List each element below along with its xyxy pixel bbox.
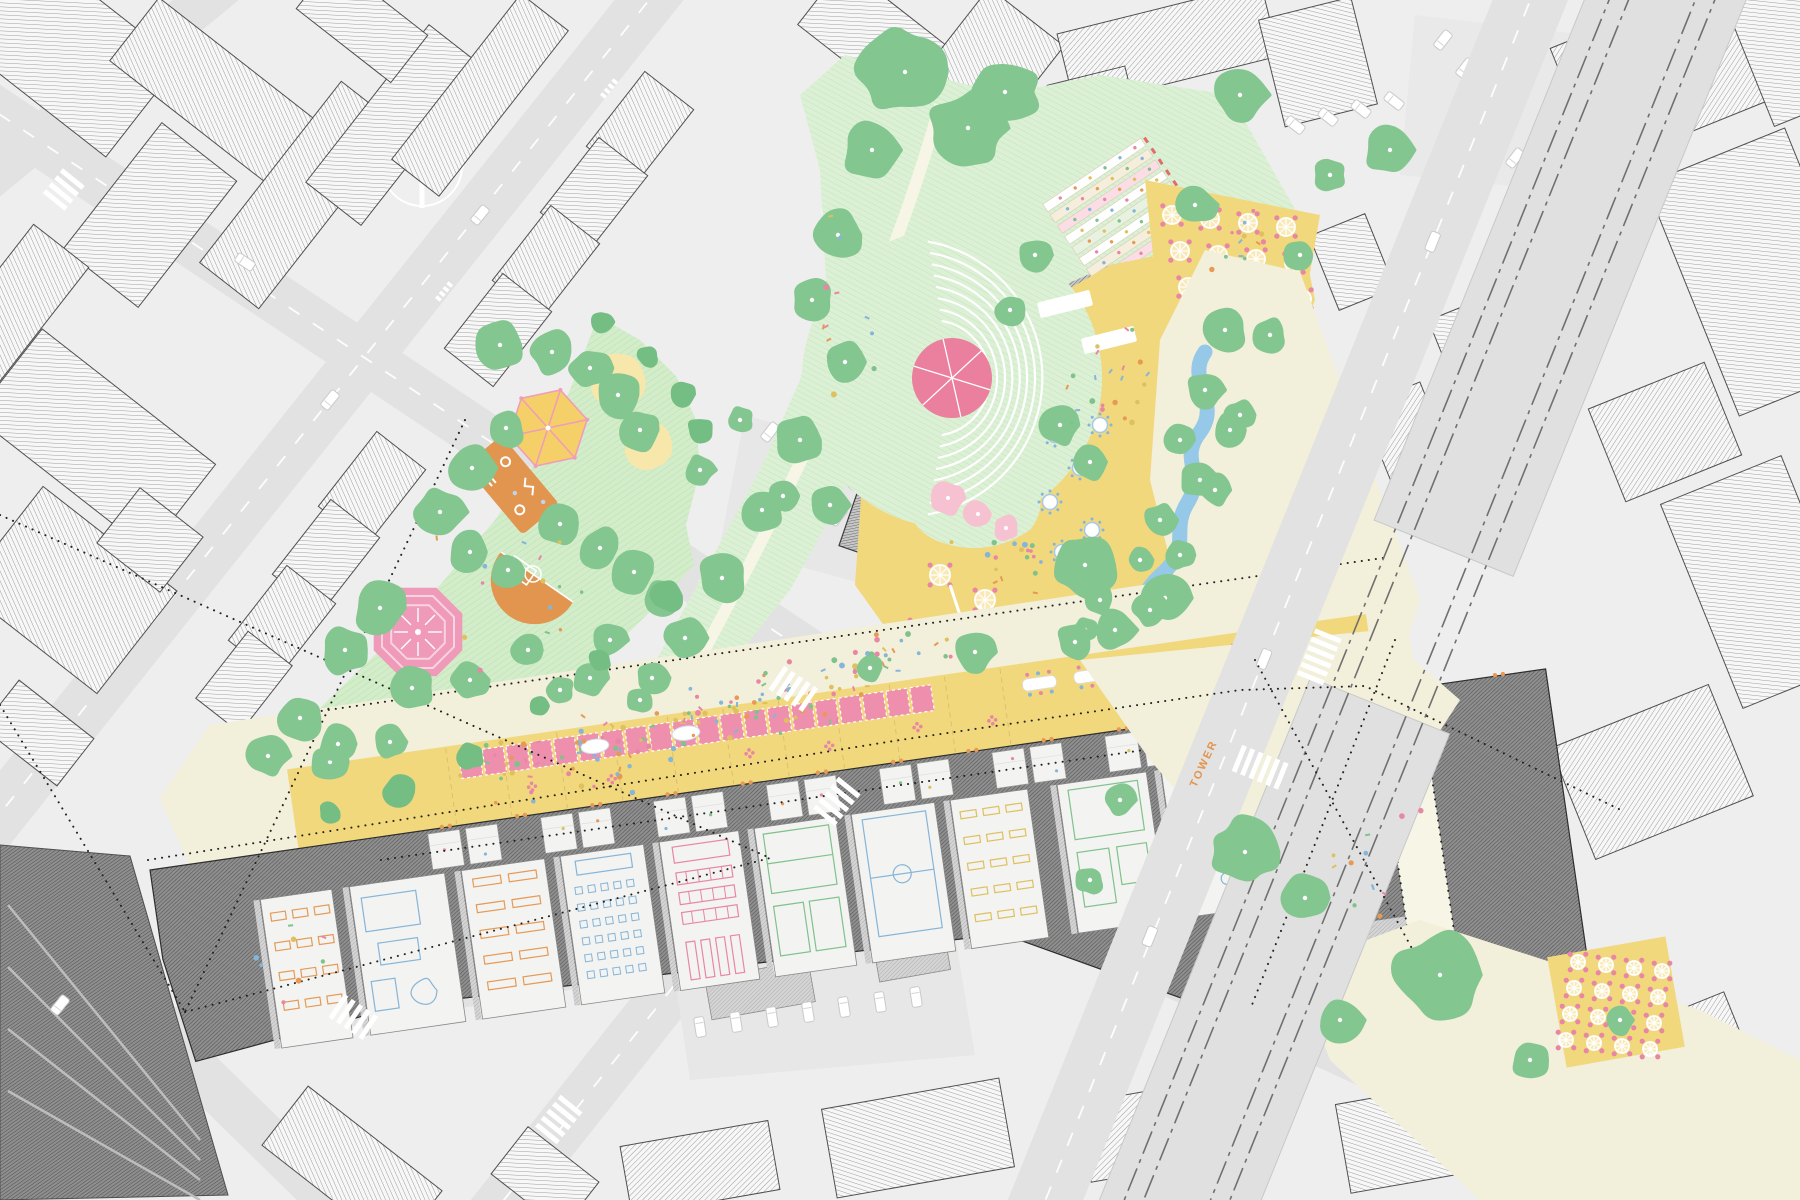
chair-dot (1588, 1007, 1593, 1012)
person-mark (1033, 571, 1038, 576)
chair-dot (1198, 226, 1203, 231)
chair-dot (1611, 955, 1616, 960)
person-mark (281, 1000, 285, 1004)
tree-trunk-dot (1303, 896, 1307, 900)
chair-dot (1639, 958, 1644, 963)
site-plan-drawing: KIOSK TOWER (0, 0, 1800, 1200)
chair-dot (1620, 999, 1625, 1004)
chair-dot (1053, 558, 1056, 561)
terrace-parasol (1588, 1007, 1609, 1028)
person-mark (558, 585, 561, 588)
tree-trunk-dot (410, 686, 414, 690)
blossom-dot (1004, 526, 1008, 530)
chair-dot (1579, 978, 1584, 983)
chair-dot (1187, 239, 1192, 244)
chair-dot (1596, 970, 1601, 975)
tree-trunk-dot (598, 546, 602, 550)
tree-canopy (1282, 875, 1328, 916)
chair-dot (1624, 973, 1629, 978)
person-mark (831, 391, 837, 397)
chair-dot (1071, 474, 1074, 477)
person-mark (482, 564, 487, 569)
chair-dot (1588, 1022, 1593, 1027)
person-mark (1129, 420, 1135, 426)
chair-dot (1639, 973, 1644, 978)
person-mark (1070, 421, 1074, 425)
tree-trunk-dot (343, 648, 347, 652)
person-mark (1012, 541, 1017, 546)
tree-trunk-dot (588, 676, 592, 680)
tree-trunk-dot (1388, 148, 1392, 152)
person-mark (829, 719, 831, 724)
chair-dot (1061, 540, 1064, 543)
chair-dot (1648, 1002, 1653, 1007)
chair-dot (1607, 996, 1612, 1001)
person-mark (836, 718, 838, 723)
tree-trunk-dot (1298, 253, 1302, 257)
market-stall (530, 740, 554, 769)
person-mark (1135, 400, 1139, 404)
tree-trunk-dot (683, 636, 687, 640)
tree-trunk-dot (266, 754, 270, 758)
round-table (1093, 418, 1108, 433)
tree-trunk-dot (1073, 640, 1077, 644)
chair-dot (1049, 512, 1052, 515)
chair-dot (1274, 215, 1279, 220)
tree-trunk-dot (1088, 460, 1092, 464)
chair-dot (1663, 987, 1668, 992)
chair-dot (1091, 431, 1094, 434)
person-mark (1239, 255, 1244, 257)
person-mark (1230, 231, 1233, 234)
tree-trunk-dot (632, 570, 636, 574)
tree-trunk-dot (388, 740, 392, 744)
chair-dot (1179, 222, 1184, 227)
chair-dot (1236, 230, 1241, 235)
hall-room-small (879, 764, 916, 804)
chair-dot (1659, 1013, 1664, 1018)
hall-room-small (1029, 743, 1066, 783)
chair-dot (1102, 529, 1105, 532)
chair-dot (1088, 424, 1091, 427)
chair-dot (1091, 518, 1094, 521)
tree-trunk-dot (616, 393, 620, 397)
chair-dot (1571, 1045, 1576, 1050)
person-mark (896, 670, 901, 672)
terrace-parasol (1560, 1004, 1581, 1025)
round-table (1043, 495, 1058, 510)
person-mark (1259, 231, 1264, 236)
chair-dot (1624, 958, 1629, 963)
chair-dot (1640, 1054, 1645, 1059)
chair-dot (1599, 1048, 1604, 1053)
tree-canopy (322, 803, 339, 821)
person-mark (559, 628, 562, 631)
chair-dot (1652, 961, 1657, 966)
tree-trunk-dot (298, 716, 302, 720)
tree-trunk-dot (843, 360, 847, 364)
chair-dot (1663, 1002, 1668, 1007)
tree-trunk-dot (638, 698, 642, 702)
tree-trunk-dot (1178, 438, 1182, 442)
tree-trunk-dot (1338, 1018, 1342, 1022)
tree-trunk-dot (1008, 308, 1012, 312)
chair-dot (1584, 1048, 1589, 1053)
tree-trunk-dot (650, 676, 654, 680)
terrace-parasol (1556, 1030, 1577, 1051)
chair-dot (1592, 996, 1597, 1001)
chair-dot (1635, 999, 1640, 1004)
person-mark (1138, 359, 1143, 364)
tree-trunk-dot (1088, 878, 1092, 882)
terrace-parasol (1620, 984, 1641, 1005)
market-stall (815, 698, 839, 727)
tree-trunk-dot (1138, 558, 1142, 562)
person-mark (1261, 239, 1266, 244)
person-mark (1101, 403, 1105, 407)
chair-dot (1571, 1030, 1576, 1035)
chair-dot (1655, 1054, 1660, 1059)
tree-trunk-dot (903, 70, 907, 74)
tree-trunk-dot (336, 742, 340, 746)
tree-trunk-dot (1203, 388, 1207, 392)
chair-dot (1106, 416, 1109, 419)
chair-dot (1206, 243, 1211, 248)
tree-canopy (690, 421, 711, 441)
person-mark (736, 702, 738, 707)
tree-trunk-dot (973, 650, 977, 654)
chair-dot (1187, 258, 1192, 263)
tree-trunk-dot (438, 510, 442, 514)
person-mark (870, 331, 874, 335)
chair-dot (1631, 1025, 1636, 1030)
tree-trunk-dot (1328, 173, 1332, 177)
person-mark (1399, 813, 1405, 819)
masterplan-canvas: KIOSK TOWER (0, 0, 1800, 1200)
person-mark (1022, 542, 1028, 548)
tree-trunk-dot (720, 576, 724, 580)
terrace-parasol (1236, 211, 1260, 235)
tree-trunk-dot (1148, 608, 1152, 612)
tree-trunk-dot (558, 522, 562, 526)
chair-dot (1584, 1033, 1589, 1038)
tree-trunk-dot (550, 350, 554, 354)
person-mark (1352, 903, 1356, 907)
chair-dot (1583, 952, 1588, 957)
chair-dot (992, 588, 997, 593)
chair-dot (1255, 211, 1260, 216)
chair-dot (1263, 247, 1268, 252)
hall-room-small (992, 748, 1029, 788)
chair-dot (1056, 508, 1059, 511)
person-mark (548, 605, 553, 610)
person-mark (950, 540, 954, 544)
chair-dot (1168, 258, 1173, 263)
person-mark (1071, 373, 1076, 378)
person-mark (558, 540, 562, 544)
pavilion-center (415, 629, 421, 635)
chair-dot (1627, 1036, 1632, 1041)
hall-room-small (653, 797, 690, 837)
person-mark (478, 668, 483, 673)
tree-trunk-dot (1238, 413, 1242, 417)
chair-dot (1579, 993, 1584, 998)
chair-dot (1046, 441, 1049, 444)
terrace-parasol (1596, 955, 1617, 976)
tree-trunk-dot (1618, 1018, 1622, 1022)
chair-dot (1556, 1030, 1561, 1035)
chair-dot (1079, 478, 1082, 481)
person-mark (1095, 344, 1099, 348)
person-mark (827, 355, 831, 359)
tree-trunk-dot (1058, 423, 1062, 427)
chair-dot (1293, 215, 1298, 220)
person-mark (838, 236, 842, 240)
chair-dot (1648, 987, 1653, 992)
tree-canopy (458, 745, 481, 768)
person-mark (991, 540, 996, 545)
tree-trunk-dot (1213, 488, 1217, 492)
chair-dot (1556, 1045, 1561, 1050)
chair-dot (1640, 1039, 1645, 1044)
tree-trunk-dot (868, 666, 872, 670)
tree-trunk-dot (1033, 253, 1037, 257)
chair-dot (1620, 984, 1625, 989)
chair-dot (1217, 226, 1222, 231)
terrace-parasol (1274, 215, 1298, 239)
chair-dot (1644, 1028, 1649, 1033)
person-mark (1142, 382, 1146, 386)
tree-trunk-dot (1113, 628, 1117, 632)
hall-room-small (541, 813, 578, 853)
tree-trunk-dot (1118, 798, 1122, 802)
chair-dot (1309, 287, 1314, 292)
person-mark (291, 937, 296, 942)
market-stall (839, 695, 863, 724)
chair-dot (1293, 234, 1298, 239)
person-mark (1123, 416, 1127, 420)
chair-dot (1068, 467, 1071, 470)
chair-dot (1612, 1051, 1617, 1056)
person-mark (1025, 555, 1029, 559)
tree-trunk-dot (781, 494, 785, 498)
chair-dot (928, 563, 933, 568)
person-mark (1224, 255, 1228, 259)
person-mark (762, 702, 767, 704)
person-mark (994, 568, 997, 571)
chair-dot (928, 582, 933, 587)
tree-canopy (532, 698, 548, 713)
hall-room-small (428, 829, 465, 869)
tree-trunk-dot (760, 508, 764, 512)
person-mark (1418, 808, 1423, 813)
person-mark (1032, 555, 1036, 559)
person-mark (985, 552, 991, 558)
tree-trunk-dot (798, 438, 802, 442)
chair-dot (1054, 445, 1057, 448)
terrace-parasol (1624, 958, 1645, 979)
chair-dot (1575, 1019, 1580, 1024)
person-mark (1039, 560, 1043, 564)
tree-trunk-dot (470, 466, 474, 470)
chair-dot (1049, 490, 1052, 493)
person-mark (540, 578, 545, 583)
tree-trunk-dot (1438, 973, 1442, 977)
tree-trunk-dot (498, 343, 502, 347)
person-mark (1363, 851, 1368, 856)
chair-dot (973, 588, 978, 593)
person-mark (993, 555, 998, 560)
chair-dot (1160, 203, 1165, 208)
chair-dot (1575, 1004, 1580, 1009)
chair-dot (1160, 222, 1165, 227)
person-mark (580, 590, 583, 593)
person-mark (253, 955, 259, 961)
market-stall (553, 736, 577, 765)
tree-trunk-dot (638, 428, 642, 432)
terrace-parasol (1592, 981, 1613, 1002)
tree-trunk-dot (504, 426, 508, 430)
tree-trunk-dot (1003, 90, 1007, 94)
chair-dot (947, 563, 952, 568)
chair-dot (1080, 529, 1083, 532)
hall-room-small (465, 824, 502, 864)
tree-trunk-dot (1223, 328, 1227, 332)
tree-trunk-dot (1098, 598, 1102, 602)
person-mark (1377, 913, 1382, 918)
tree-trunk-dot (870, 148, 874, 152)
tree-trunk-dot (526, 648, 530, 652)
hall-room-small (578, 808, 615, 848)
person-mark (1100, 407, 1105, 412)
chair-dot (1568, 952, 1573, 957)
chair-dot (1225, 243, 1230, 248)
chair-dot (1041, 508, 1044, 511)
terrace-parasol (1612, 1036, 1633, 1057)
chair-dot (1038, 501, 1041, 504)
chair-dot (1071, 459, 1074, 462)
terrace-parasol (1644, 1013, 1665, 1034)
person-mark (823, 284, 829, 290)
terrace-parasol (928, 563, 953, 588)
tree-trunk-dot (378, 606, 382, 610)
chair-dot (1611, 970, 1616, 975)
hall-room-small (766, 781, 803, 821)
tree-trunk-dot (468, 550, 472, 554)
tree-canopy (593, 314, 613, 331)
chair-dot (1098, 521, 1101, 524)
tree-trunk-dot (468, 678, 472, 682)
tree-trunk-dot (1193, 203, 1197, 207)
chair-dot (1659, 1028, 1664, 1033)
person-mark (1332, 853, 1336, 857)
chair-dot (1612, 1036, 1617, 1041)
person-mark (1209, 267, 1214, 272)
tree-trunk-dot (588, 366, 592, 370)
tree-canopy (1021, 243, 1051, 271)
terrace-parasol (1584, 1033, 1605, 1054)
market-stall (910, 685, 934, 714)
chair-dot (1099, 435, 1102, 438)
market-stall (862, 692, 886, 721)
chair-dot (1627, 1051, 1632, 1056)
chair-dot (1106, 431, 1109, 434)
hall-room-small (691, 792, 728, 832)
chair-dot (1599, 1033, 1604, 1038)
tree-trunk-dot (966, 126, 970, 130)
chair-dot (1274, 234, 1279, 239)
person-mark (1349, 860, 1354, 865)
tree-canopy (673, 384, 694, 406)
person-mark (296, 978, 302, 984)
chair-dot (1236, 211, 1241, 216)
chair-dot (1091, 416, 1094, 419)
terrace-parasol (1568, 952, 1589, 973)
chair-dot (1244, 247, 1249, 252)
chair-dot (1176, 275, 1181, 280)
tree-canopy (591, 652, 609, 669)
chair-dot (1568, 967, 1573, 972)
person-mark (1029, 549, 1033, 553)
chair-dot (1644, 1013, 1649, 1018)
person-mark (865, 685, 870, 687)
terrace-parasol (1564, 978, 1585, 999)
tree-trunk-dot (608, 638, 612, 642)
person-mark (1242, 234, 1247, 239)
tree-trunk-dot (1528, 1058, 1532, 1062)
person-mark (1026, 549, 1030, 553)
chair-dot (1655, 1039, 1660, 1044)
chair-dot (1592, 981, 1597, 986)
person-mark (1130, 328, 1134, 332)
person-mark (1030, 543, 1035, 548)
chair-dot (1060, 501, 1063, 504)
person-mark (259, 963, 263, 967)
person-mark (1075, 409, 1080, 411)
person-mark (1251, 209, 1255, 213)
chair-dot (1560, 1004, 1565, 1009)
chair-dot (1176, 294, 1181, 299)
tree-trunk-dot (698, 468, 702, 472)
person-mark (1089, 398, 1095, 404)
person-mark (871, 366, 876, 371)
terrace-parasol (1640, 1039, 1661, 1060)
tree-trunk-dot (1238, 93, 1242, 97)
person-mark (481, 581, 485, 585)
terrace-parasol (1652, 961, 1673, 982)
terrace-parasol (1648, 987, 1669, 1008)
chair-dot (1053, 543, 1056, 546)
tree-trunk-dot (1228, 428, 1232, 432)
tree-trunk-dot (1178, 553, 1182, 557)
tree-trunk-dot (810, 298, 814, 302)
hall-room-small (917, 759, 954, 799)
blossom-dot (946, 496, 950, 500)
tree-trunk-dot (1268, 333, 1272, 337)
tree-trunk-dot (506, 568, 510, 572)
chair-dot (1667, 976, 1672, 981)
tree-trunk-dot (1158, 518, 1162, 522)
person-mark (1243, 221, 1247, 225)
chair-dot (1603, 1007, 1608, 1012)
person-mark (1019, 547, 1024, 552)
tree-trunk-dot (558, 688, 562, 692)
market-stall (886, 688, 910, 717)
chair-dot (1631, 1010, 1636, 1015)
person-mark (1112, 400, 1117, 405)
tree-trunk-dot (1083, 563, 1087, 567)
chair-dot (1607, 981, 1612, 986)
